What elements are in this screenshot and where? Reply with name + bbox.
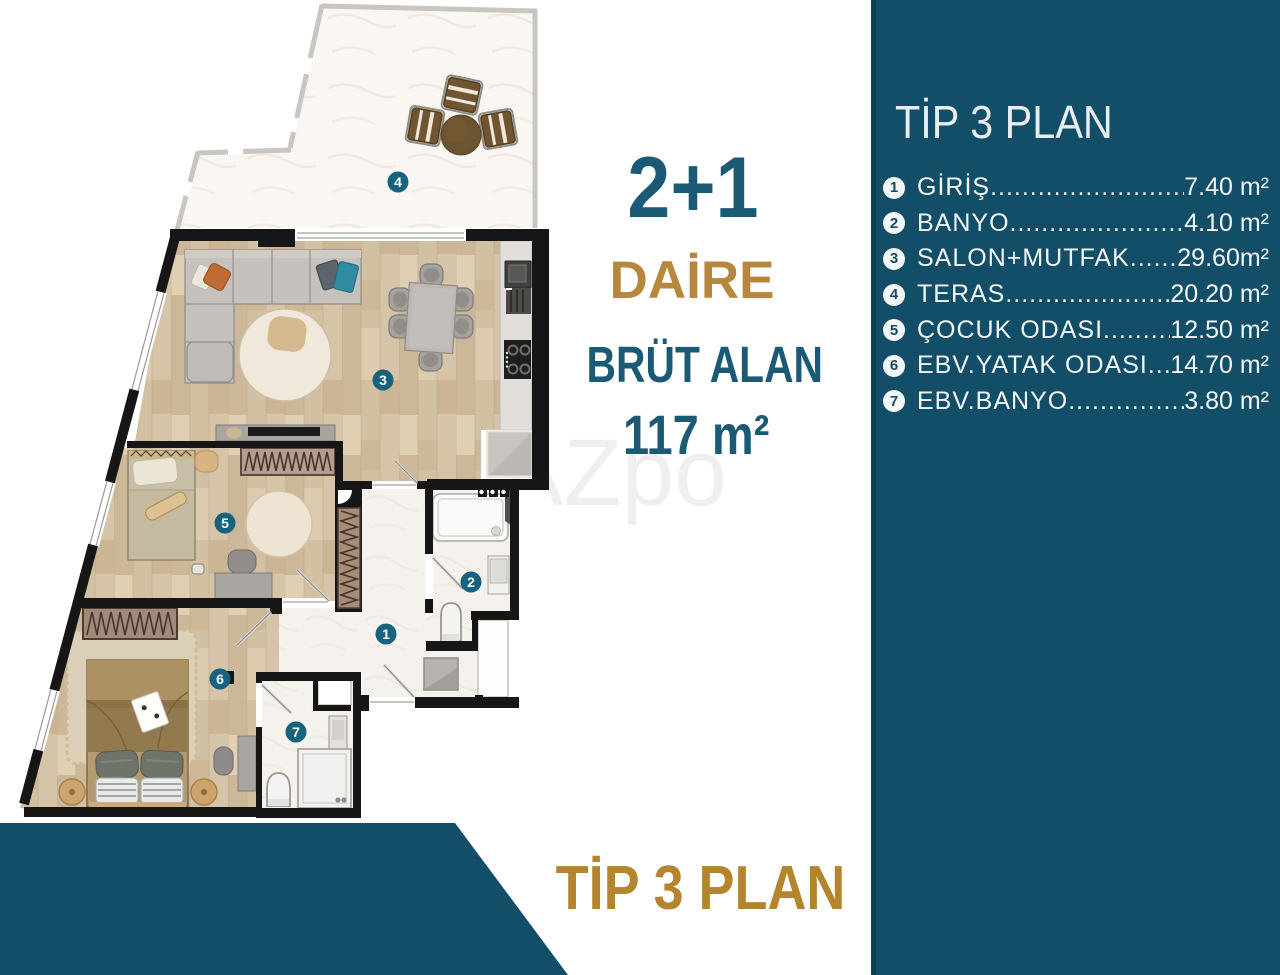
svg-text:2: 2 [467, 574, 475, 590]
svg-text:7: 7 [292, 724, 300, 740]
svg-text:5: 5 [221, 515, 229, 531]
svg-text:1: 1 [382, 626, 390, 642]
svg-text:6: 6 [216, 671, 224, 687]
